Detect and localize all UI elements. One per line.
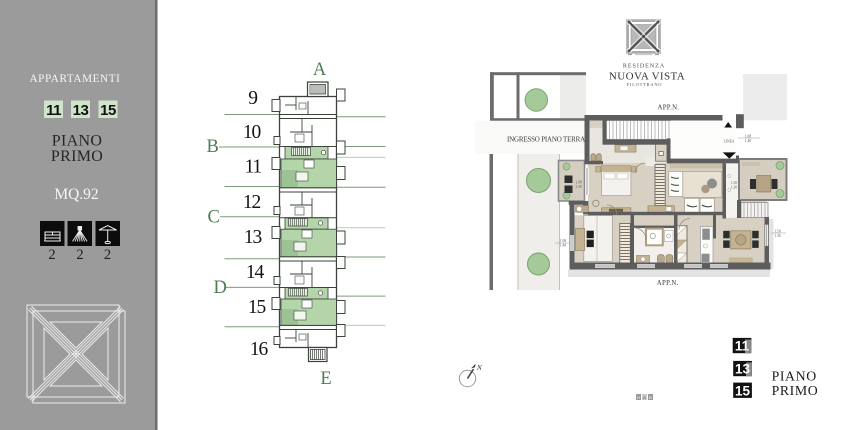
svg-text:11: 11 — [245, 157, 262, 178]
svg-text:A: A — [643, 395, 646, 400]
svg-text:1.50: 1.50 — [731, 181, 737, 185]
svg-text:10: 10 — [243, 122, 261, 143]
svg-text:NUOVA VISTA: NUOVA VISTA — [609, 71, 685, 83]
svg-text:1.40: 1.40 — [745, 139, 751, 143]
svg-text:1.08: 1.08 — [560, 239, 566, 243]
svg-text:15: 15 — [100, 102, 116, 119]
svg-text:PIANO: PIANO — [52, 133, 102, 150]
svg-text:B: B — [207, 137, 219, 157]
svg-text:APPARTAMENTI: APPARTAMENTI — [30, 73, 121, 85]
svg-text:PIANO: PIANO — [772, 369, 817, 384]
svg-text:13: 13 — [73, 102, 89, 119]
svg-text:LINEA: LINEA — [724, 139, 735, 143]
svg-text:12: 12 — [243, 192, 261, 213]
svg-text:1.40: 1.40 — [560, 244, 566, 248]
svg-text:1.08: 1.08 — [745, 134, 751, 138]
svg-text:13: 13 — [735, 362, 751, 377]
svg-text:APP.N.: APP.N. — [657, 105, 679, 112]
svg-text:13: 13 — [244, 227, 262, 248]
svg-text:1.30: 1.30 — [731, 186, 737, 190]
svg-text:B: B — [649, 395, 652, 400]
svg-text:D: D — [214, 278, 227, 298]
svg-text:9: 9 — [248, 88, 258, 109]
svg-text:E: E — [320, 369, 331, 389]
svg-text:PRIMO: PRIMO — [51, 148, 103, 165]
svg-text:APP.N.: APP.N. — [657, 280, 679, 287]
svg-text:RESIDENZA: RESIDENZA — [623, 64, 665, 70]
svg-text:1.30: 1.30 — [774, 234, 780, 238]
svg-text:2: 2 — [104, 247, 111, 263]
svg-text:INGRESSO PIANO TERRA: INGRESSO PIANO TERRA — [507, 136, 585, 144]
svg-text:C: C — [208, 208, 220, 228]
svg-text:1.50: 1.50 — [774, 229, 780, 233]
svg-text:2: 2 — [48, 247, 55, 263]
svg-text:FILOTTRANO: FILOTTRANO — [627, 82, 663, 87]
svg-text:PRIMO: PRIMO — [772, 383, 819, 398]
svg-text:1.08: 1.08 — [575, 181, 581, 185]
svg-text:N: N — [476, 364, 482, 372]
svg-text:15: 15 — [735, 383, 751, 398]
svg-text:2.39: 2.39 — [575, 185, 581, 189]
svg-text:11: 11 — [735, 339, 750, 354]
svg-text:MQ.92: MQ.92 — [54, 186, 98, 203]
svg-text:11: 11 — [46, 102, 61, 119]
svg-text:15: 15 — [248, 297, 266, 318]
svg-text:16: 16 — [250, 339, 269, 360]
svg-text:A: A — [313, 60, 327, 80]
svg-text:H: H — [637, 395, 640, 400]
svg-text:2: 2 — [76, 247, 83, 263]
svg-text:14: 14 — [246, 262, 265, 283]
